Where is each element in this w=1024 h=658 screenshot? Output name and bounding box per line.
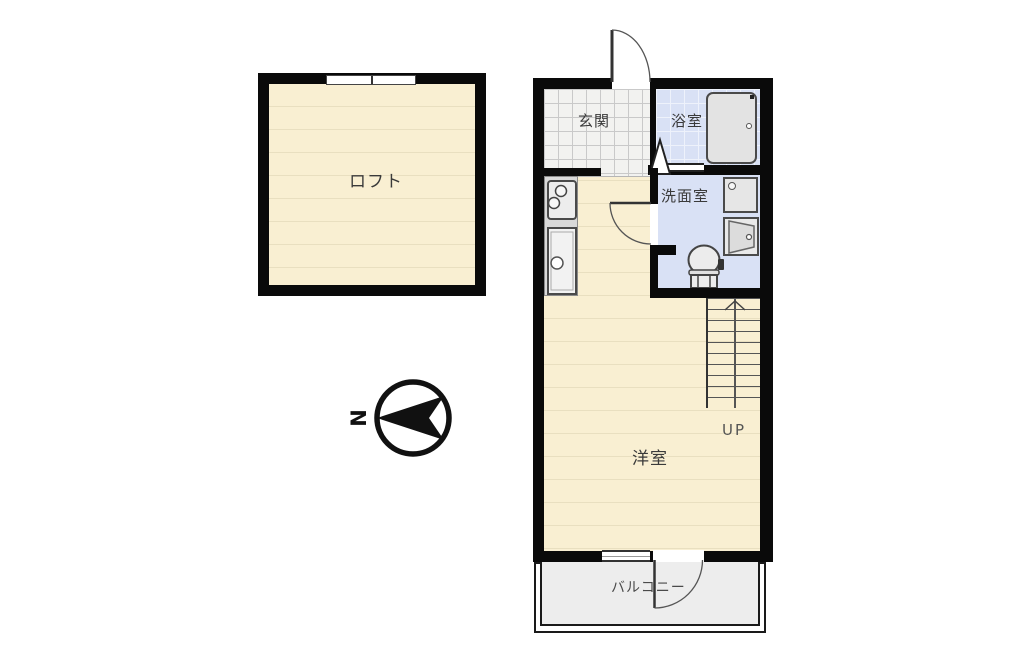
entrance-floor xyxy=(544,89,656,177)
compass-icon: N xyxy=(340,366,470,472)
kitchen-sink-icon xyxy=(546,226,578,296)
wall-segment xyxy=(533,168,601,176)
stairs xyxy=(706,298,760,408)
entrance-door-icon xyxy=(606,24,658,86)
entrance-label: 玄関 xyxy=(578,114,610,129)
floor-plan: ロフト N 玄関 浴室 洗面室 xyxy=(0,0,1024,658)
washroom-door-icon xyxy=(604,197,658,251)
washing-machine-pan-icon xyxy=(723,177,758,213)
north-label: N xyxy=(347,409,371,427)
bottom-window-icon xyxy=(602,550,650,562)
loft-window-icon xyxy=(326,75,416,85)
loft-label: ロフト xyxy=(349,174,403,191)
washroom-label: 洗面室 xyxy=(661,189,709,204)
stove-icon xyxy=(546,179,578,221)
up-label: UP xyxy=(722,423,746,438)
toilet-icon xyxy=(684,245,728,289)
bathtub-icon xyxy=(706,92,757,164)
vanity-icon xyxy=(723,217,760,257)
wall-segment xyxy=(650,288,760,298)
stairs-up-arrow-icon xyxy=(721,299,749,312)
main-room-label: 洋室 xyxy=(632,451,668,468)
balcony-door-icon xyxy=(649,556,711,618)
bathroom-label: 浴室 xyxy=(671,114,703,129)
